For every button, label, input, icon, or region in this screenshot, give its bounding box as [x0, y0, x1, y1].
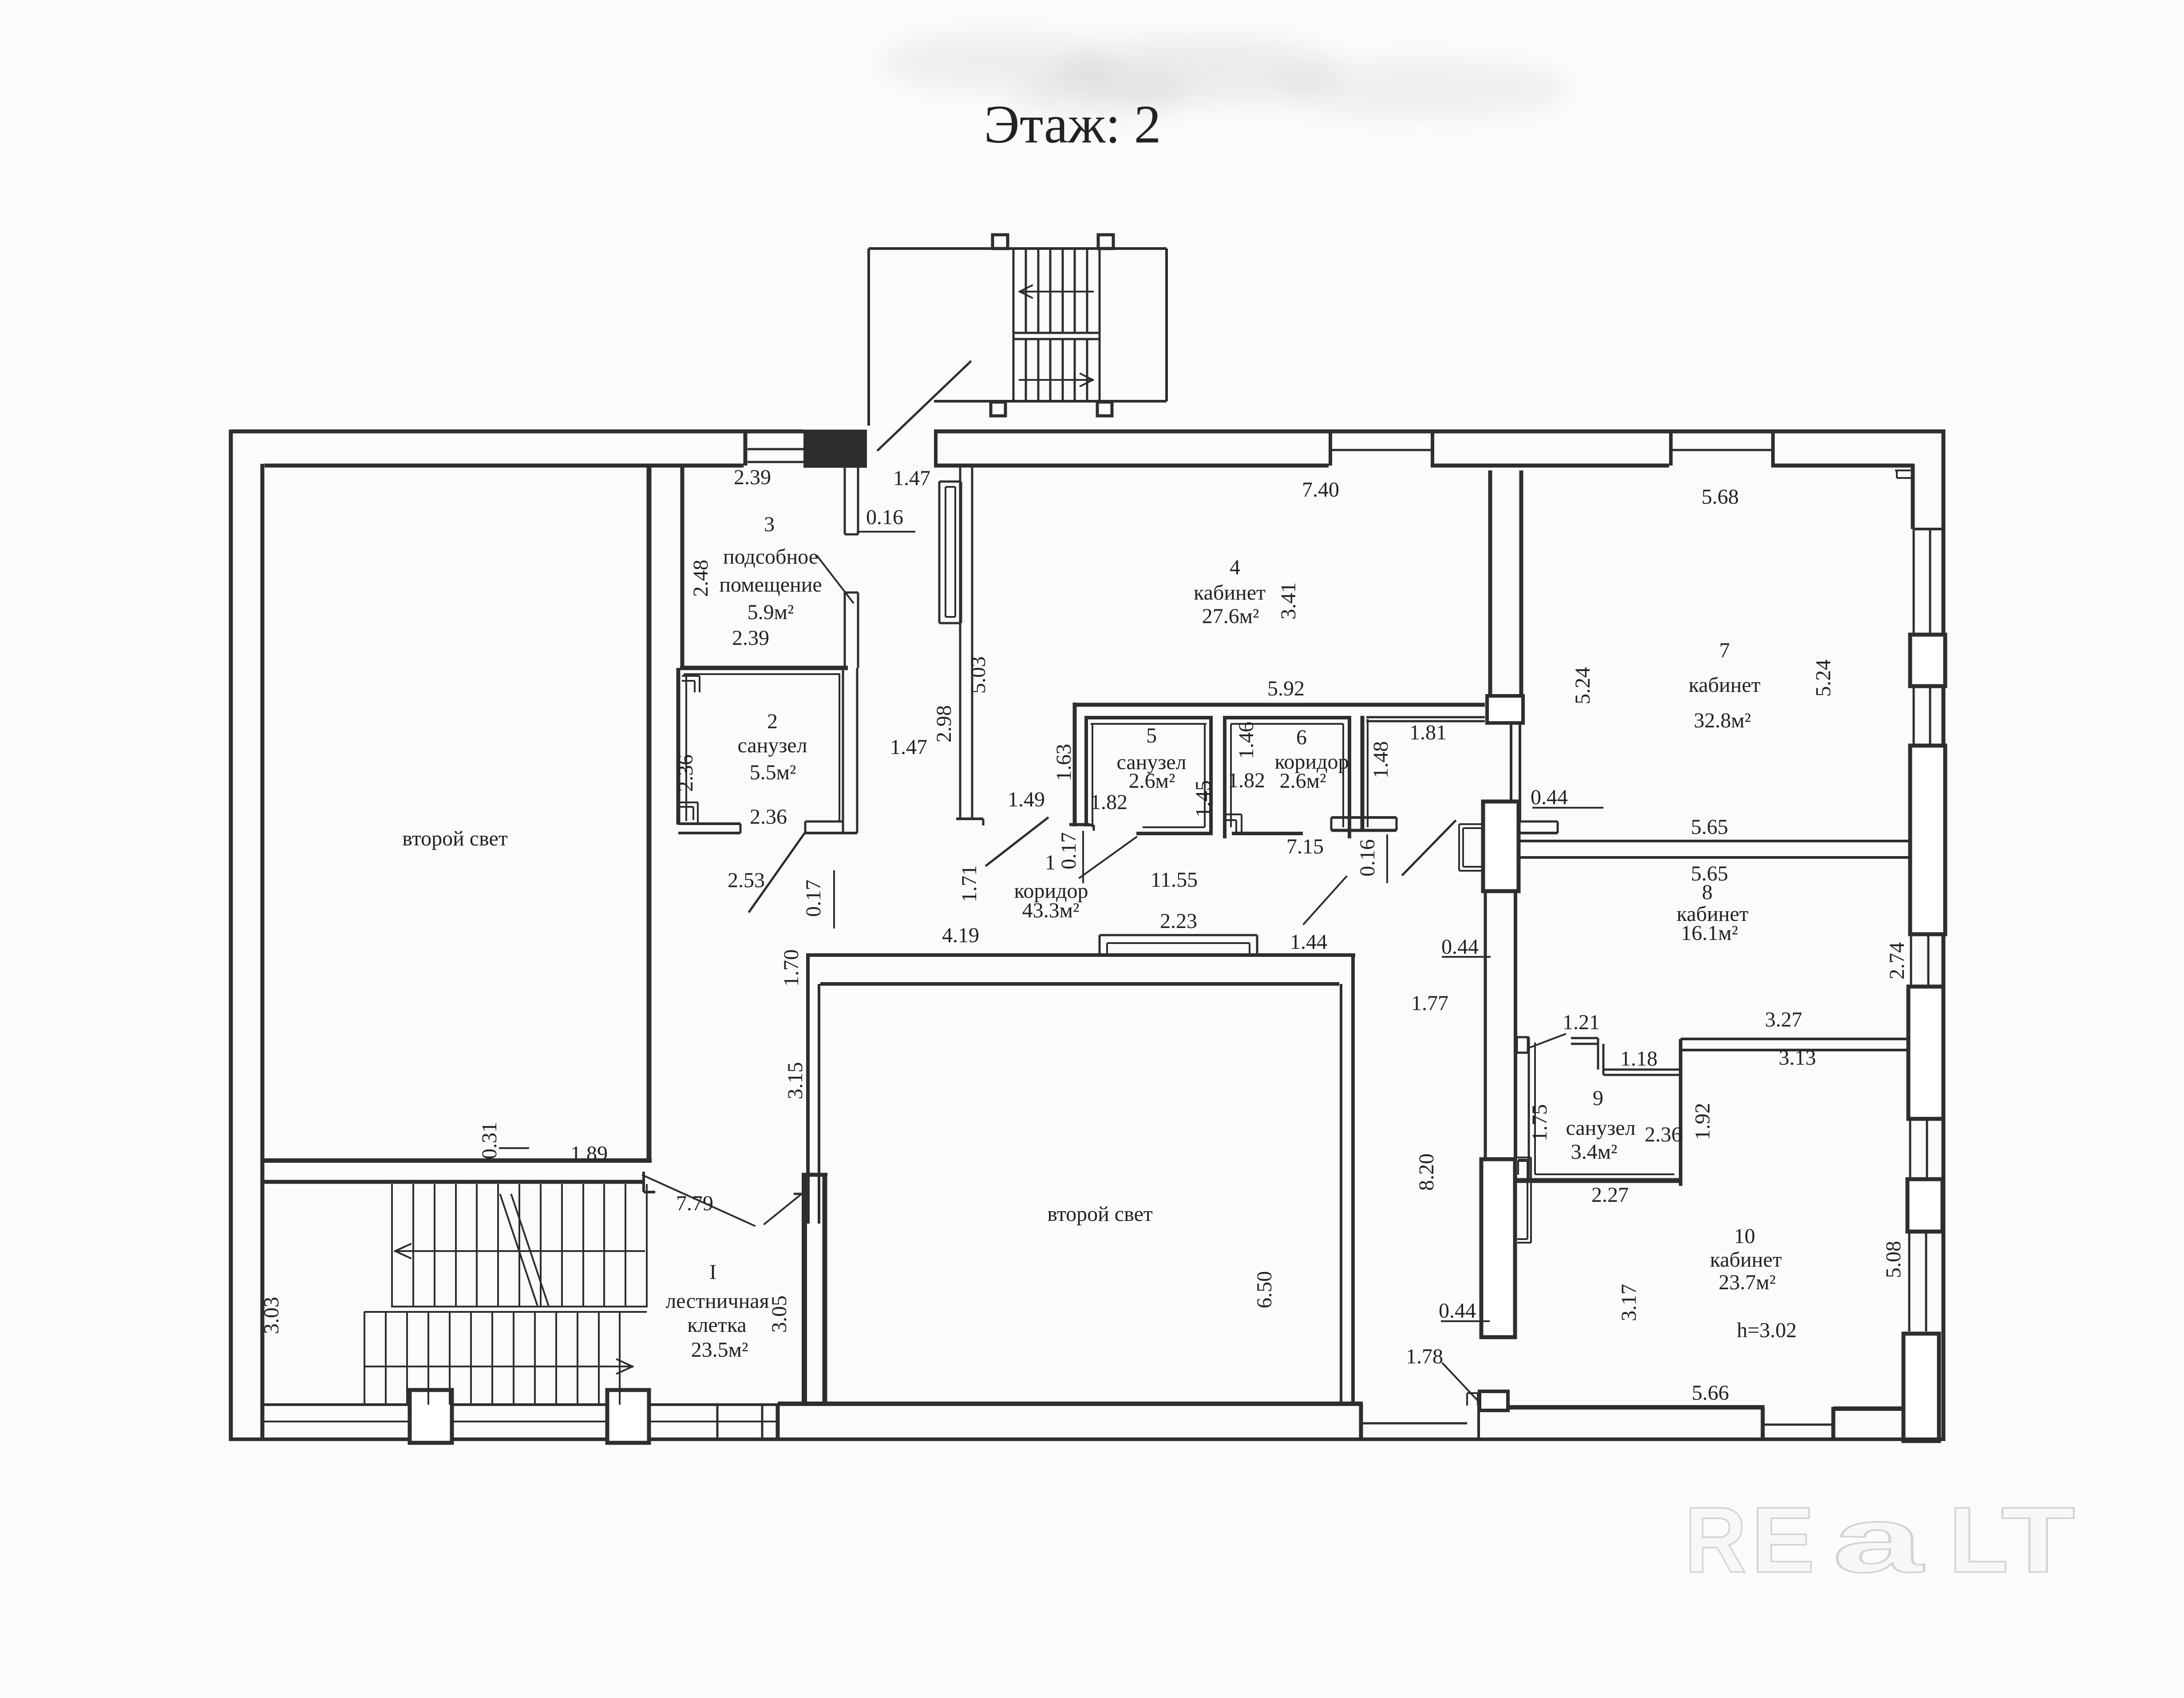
svg-text:3.03: 3.03 [260, 1297, 283, 1334]
svg-text:помещение: помещение [719, 573, 822, 596]
svg-text:h=3.02: h=3.02 [1737, 1319, 1796, 1342]
svg-text:2.39: 2.39 [734, 466, 771, 489]
svg-text:5.08: 5.08 [1882, 1241, 1905, 1278]
svg-text:1.75: 1.75 [1528, 1104, 1551, 1141]
svg-text:кабинет: кабинет [1710, 1248, 1782, 1272]
svg-text:подсобное: подсобное [723, 545, 818, 569]
svg-text:43.3м²: 43.3м² [1022, 899, 1080, 922]
svg-text:R: R [1685, 1488, 1747, 1592]
svg-text:1.46: 1.46 [1234, 722, 1258, 759]
svg-text:0.44: 0.44 [1531, 786, 1568, 809]
svg-text:7.40: 7.40 [1302, 478, 1339, 502]
svg-text:5: 5 [1146, 724, 1157, 747]
svg-text:5.5м²: 5.5м² [750, 761, 796, 784]
svg-text:1.89: 1.89 [570, 1142, 608, 1165]
svg-text:11.55: 11.55 [1151, 868, 1198, 892]
svg-text:0.17: 0.17 [1057, 832, 1080, 869]
svg-text:T: T [2001, 1488, 2075, 1592]
svg-text:1.81: 1.81 [1409, 721, 1447, 744]
svg-text:1.18: 1.18 [1620, 1047, 1658, 1070]
svg-text:10: 10 [1734, 1224, 1755, 1248]
svg-text:второй свет: второй свет [1047, 1202, 1152, 1226]
svg-text:0.16: 0.16 [866, 505, 903, 529]
svg-text:2.23: 2.23 [1160, 909, 1197, 933]
svg-text:7.15: 7.15 [1286, 835, 1324, 858]
svg-text:1.21: 1.21 [1563, 1011, 1600, 1034]
svg-text:3.13: 3.13 [1779, 1046, 1816, 1070]
svg-text:3.27: 3.27 [1765, 1008, 1802, 1031]
svg-text:санузел: санузел [1566, 1116, 1635, 1140]
svg-text:2.36: 2.36 [1645, 1123, 1682, 1146]
svg-text:7.79: 7.79 [676, 1192, 713, 1215]
svg-text:1.44: 1.44 [1290, 930, 1327, 954]
svg-text:1.77: 1.77 [1411, 991, 1448, 1015]
svg-text:23.5м²: 23.5м² [691, 1338, 748, 1362]
svg-text:1.63: 1.63 [1052, 744, 1076, 781]
svg-text:5.9м²: 5.9м² [748, 600, 794, 624]
svg-text:3.05: 3.05 [768, 1295, 791, 1333]
svg-text:8: 8 [1702, 881, 1713, 904]
svg-text:6.50: 6.50 [1253, 1271, 1276, 1308]
svg-text:1: 1 [1045, 851, 1056, 874]
svg-text:2.53: 2.53 [728, 869, 765, 892]
svg-text:16.1м²: 16.1м² [1681, 921, 1738, 945]
svg-text:32.8м²: 32.8м² [1694, 709, 1751, 732]
svg-text:2.98: 2.98 [932, 705, 956, 742]
svg-text:кабинет: кабинет [1689, 673, 1761, 697]
svg-text:3.17: 3.17 [1617, 1284, 1641, 1321]
svg-text:23.7м²: 23.7м² [1719, 1271, 1776, 1294]
svg-text:3: 3 [764, 513, 775, 536]
svg-text:1.71: 1.71 [957, 865, 981, 902]
svg-text:1.47: 1.47 [893, 466, 930, 490]
svg-text:1.48: 1.48 [1369, 741, 1393, 778]
svg-text:2.6м²: 2.6м² [1129, 769, 1175, 793]
svg-text:1.45: 1.45 [1191, 780, 1215, 817]
svg-text:2.36: 2.36 [674, 754, 697, 792]
svg-text:0.44: 0.44 [1441, 935, 1479, 959]
svg-text:5.24: 5.24 [1571, 667, 1594, 704]
svg-text:2.6м²: 2.6м² [1280, 769, 1326, 793]
svg-text:E: E [1751, 1488, 1815, 1592]
svg-text:клетка: клетка [687, 1313, 746, 1337]
svg-text:0.31: 0.31 [478, 1122, 501, 1159]
svg-text:санузел: санузел [737, 734, 807, 757]
svg-text:2.36: 2.36 [750, 805, 787, 829]
svg-text:3.4м²: 3.4м² [1571, 1140, 1618, 1164]
svg-text:L: L [1949, 1488, 2009, 1592]
svg-text:6: 6 [1296, 726, 1307, 749]
svg-text:4.19: 4.19 [942, 924, 979, 947]
svg-text:2.48: 2.48 [689, 560, 712, 597]
svg-text:3.41: 3.41 [1277, 582, 1300, 620]
svg-text:2.27: 2.27 [1591, 1183, 1629, 1207]
svg-text:лестничная: лестничная [665, 1289, 769, 1313]
svg-text:4: 4 [1230, 556, 1240, 579]
svg-text:0.17: 0.17 [802, 880, 825, 917]
svg-text:9: 9 [1593, 1086, 1603, 1110]
svg-text:1.82: 1.82 [1090, 790, 1128, 814]
svg-text:2: 2 [767, 710, 778, 733]
svg-text:a: a [1832, 1488, 1924, 1592]
svg-text:1.49: 1.49 [1008, 788, 1045, 811]
svg-text:I: I [709, 1260, 716, 1284]
svg-text:0.16: 0.16 [1356, 839, 1379, 877]
svg-text:1.47: 1.47 [890, 735, 927, 759]
svg-text:3.15: 3.15 [783, 1062, 807, 1099]
svg-text:1.82: 1.82 [1228, 769, 1265, 792]
svg-text:кабинет: кабинет [1194, 581, 1266, 604]
svg-text:1.70: 1.70 [779, 949, 803, 987]
svg-text:1.78: 1.78 [1406, 1345, 1443, 1368]
svg-text:5.92: 5.92 [1267, 677, 1305, 700]
svg-text:второй свет: второй свет [402, 827, 507, 850]
svg-text:5.66: 5.66 [1692, 1381, 1729, 1405]
svg-text:7: 7 [1719, 639, 1730, 662]
svg-text:5.68: 5.68 [1701, 485, 1739, 509]
svg-text:8.20: 8.20 [1415, 1153, 1438, 1191]
svg-text:5.65: 5.65 [1691, 815, 1728, 839]
svg-text:27.6м²: 27.6м² [1202, 604, 1259, 628]
svg-text:1.92: 1.92 [1691, 1103, 1714, 1140]
svg-text:0.44: 0.44 [1439, 1299, 1476, 1323]
svg-text:5.03: 5.03 [966, 656, 990, 694]
svg-text:5.24: 5.24 [1812, 659, 1835, 697]
svg-text:2.74: 2.74 [1885, 942, 1909, 979]
svg-text:2.39: 2.39 [732, 626, 769, 650]
svg-text:Этаж: 2: Этаж: 2 [984, 95, 1161, 154]
